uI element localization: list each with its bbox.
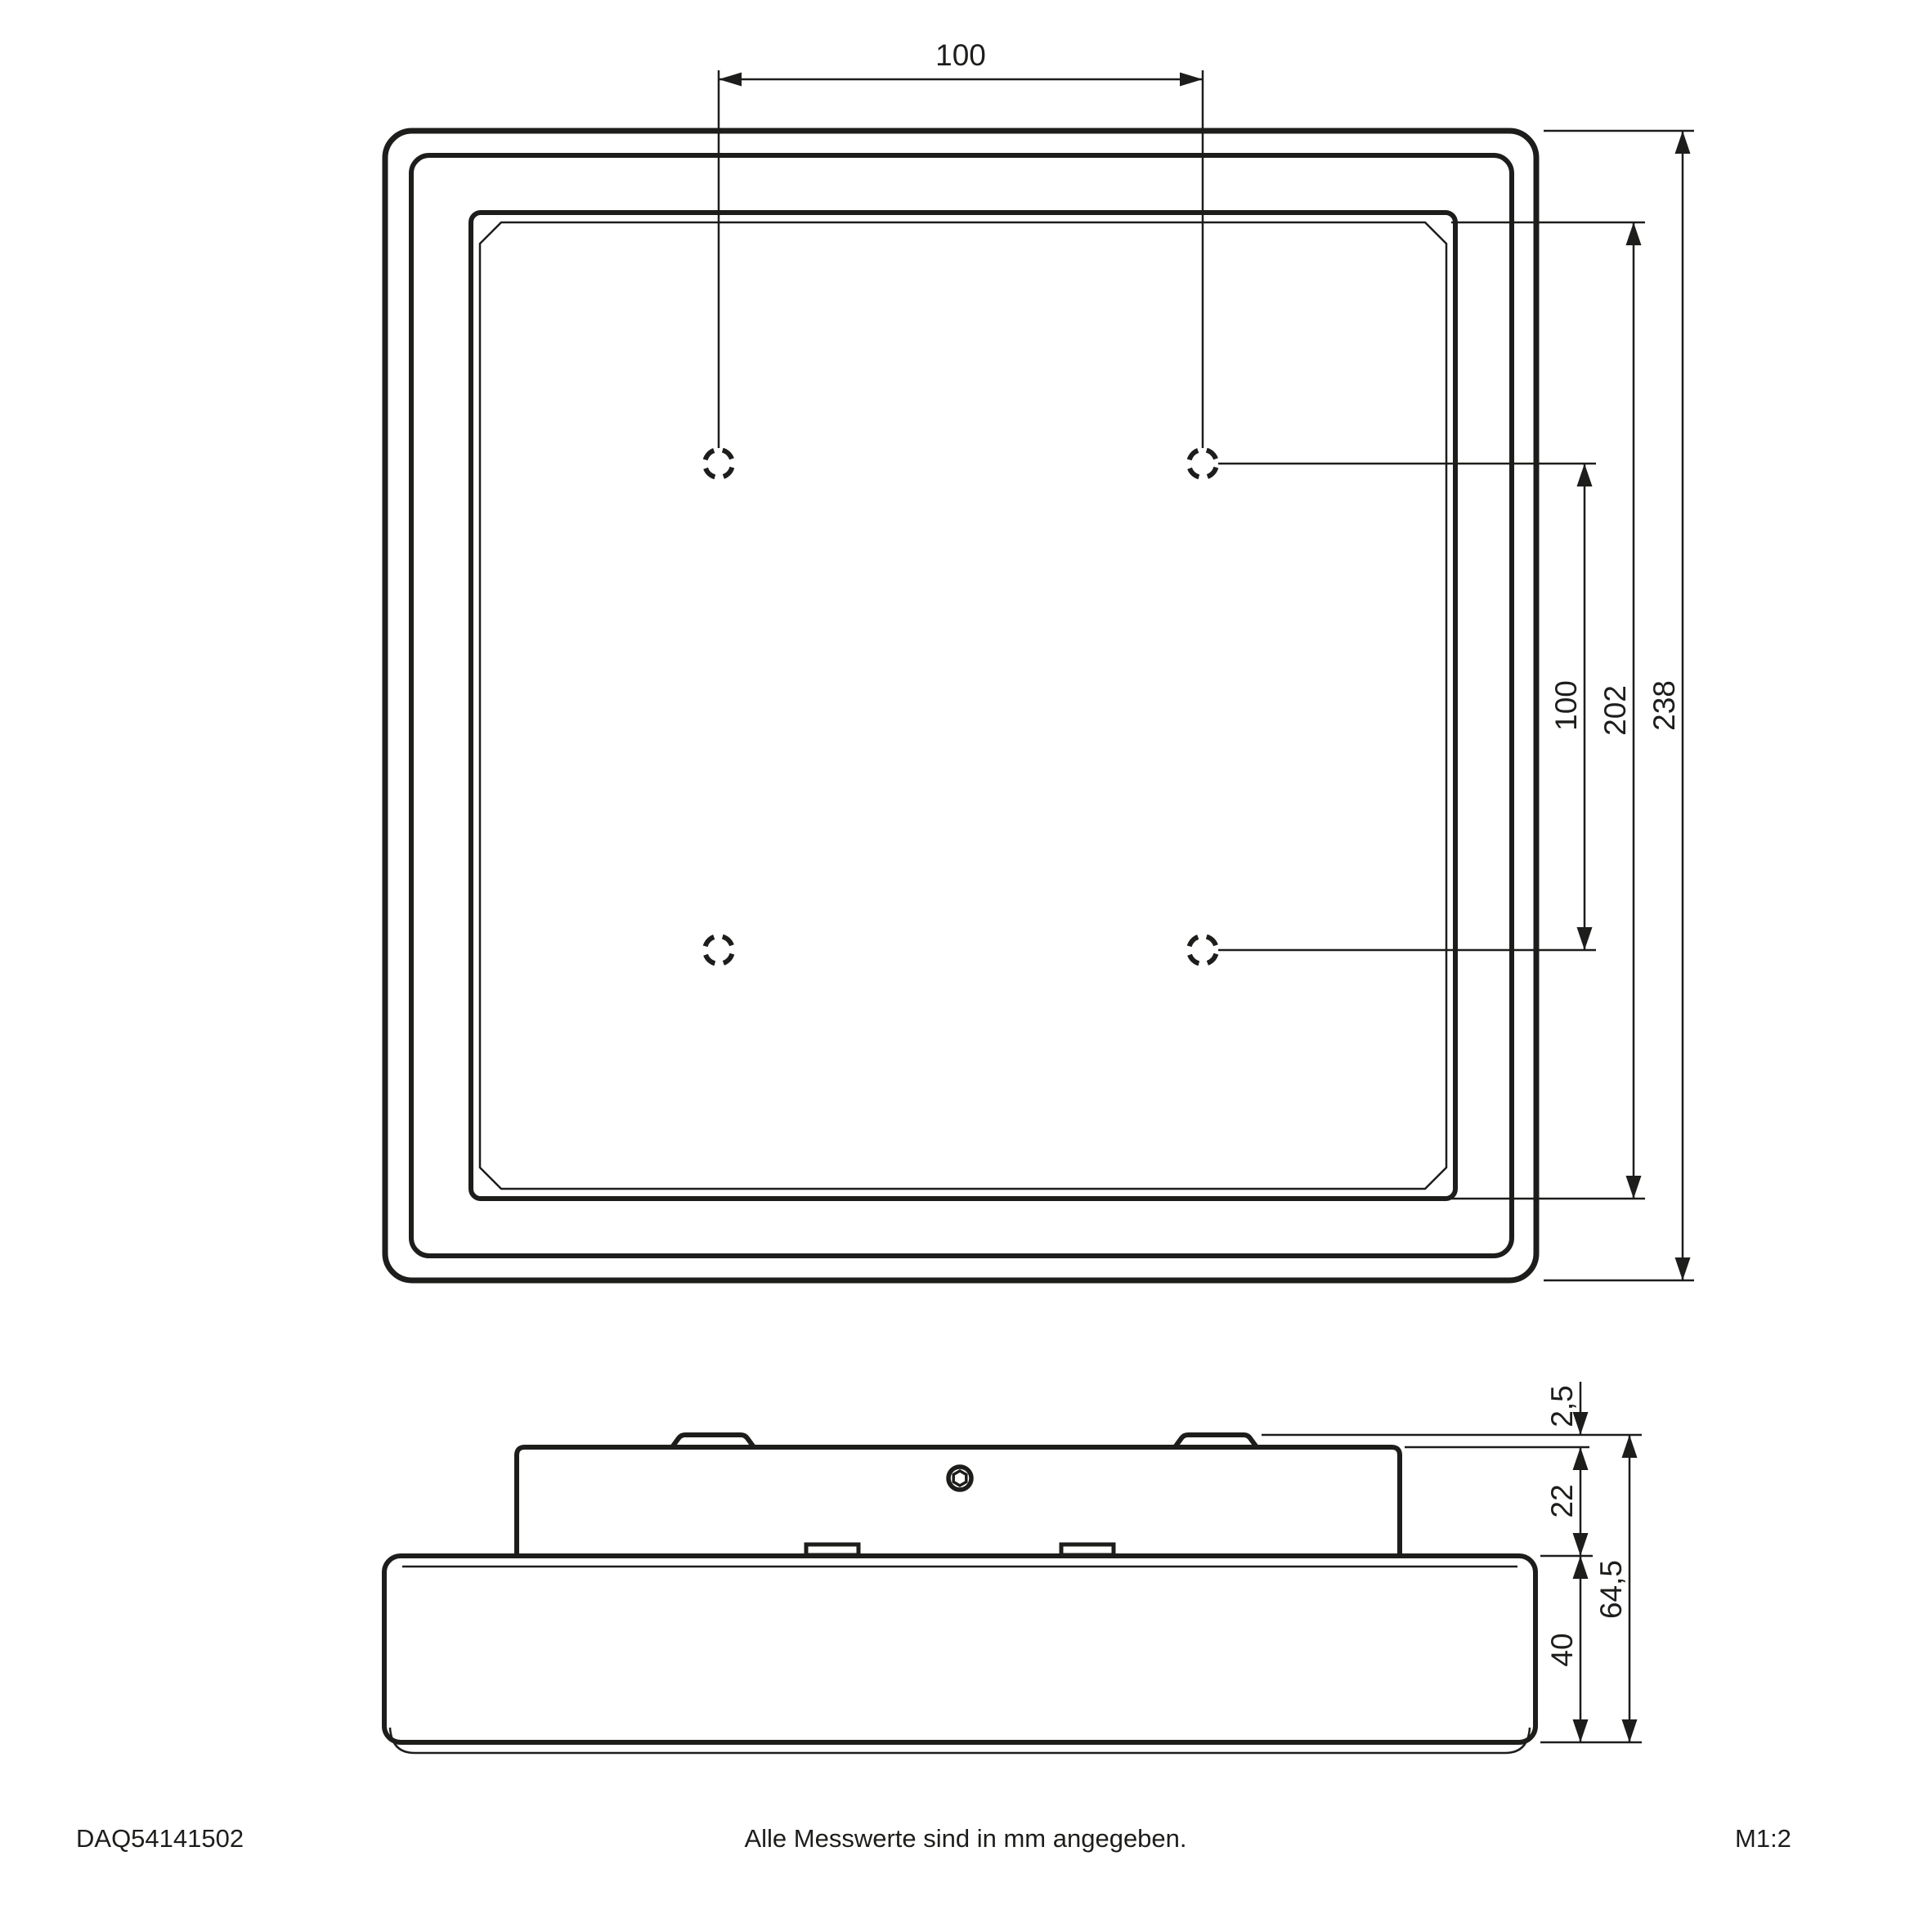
outer-frame-outline: [385, 131, 1536, 1280]
arrowhead-up-icon: [1626, 222, 1642, 245]
dim-label-housing-height: 22: [1545, 1484, 1579, 1517]
side-view: 2,5 22 40 64,5: [384, 1382, 1642, 1753]
arrowhead-down-icon: [1626, 1176, 1642, 1199]
mounting-hole-bottom-left: [705, 936, 733, 964]
arrowhead-down-icon: [1675, 1257, 1691, 1280]
mounting-hole-bottom-right: [1189, 936, 1217, 964]
arrowhead-up-icon: [1573, 1447, 1589, 1470]
dimension-drawing-canvas: 100 100 202 238: [0, 0, 1932, 1932]
dim-label-outer-frame: 238: [1647, 680, 1681, 731]
mounting-hole-top-right: [1189, 450, 1217, 477]
driver-housing-outline: [517, 1447, 1400, 1556]
scale-label: M1:2: [1735, 1824, 1791, 1853]
dim-label-inner-panel: 202: [1598, 685, 1632, 736]
dimension-clip-protrusion: 2,5: [1262, 1382, 1642, 1447]
document-number: DAQ54141502: [76, 1824, 244, 1853]
dim-label-clip-protrusion: 2,5: [1545, 1385, 1579, 1427]
dimension-hole-spacing-horizontal: 100: [719, 38, 1203, 448]
footer: DAQ54141502 Alle Messwerte sind in mm an…: [76, 1824, 1791, 1853]
diffuser-outline: [384, 1556, 1535, 1742]
light-panel-outline: [471, 213, 1455, 1199]
screw-hex-socket-icon: [953, 1471, 966, 1486]
arrowhead-down-icon: [1573, 1533, 1589, 1556]
light-panel-bevel-line: [480, 222, 1446, 1189]
dim-label-diffuser-height: 40: [1545, 1633, 1579, 1666]
dim-label-hole-spacing-h: 100: [935, 38, 986, 72]
arrowhead-up-icon: [1573, 1556, 1589, 1579]
dim-label-hole-spacing-v: 100: [1549, 680, 1583, 731]
screw-head: [948, 1467, 971, 1490]
mounting-hole-top-left: [705, 450, 733, 477]
top-view: 100 100 202 238: [385, 38, 1694, 1280]
arrowhead-up-icon: [1622, 1435, 1638, 1458]
arrowhead-up-icon: [1577, 464, 1593, 486]
units-note: Alle Messwerte sind in mm angegeben.: [744, 1824, 1186, 1853]
arrowhead-left-icon: [719, 73, 742, 87]
arrowhead-up-icon: [1675, 131, 1691, 154]
technical-drawing-page: 100 100 202 238: [0, 0, 1932, 1932]
dimension-inner-panel: 202: [1451, 222, 1645, 1199]
arrowhead-down-icon: [1622, 1719, 1638, 1742]
dimension-total-height: 64,5: [1594, 1435, 1638, 1742]
arrowhead-down-icon: [1573, 1719, 1589, 1742]
arrowhead-down-icon: [1577, 927, 1593, 950]
dimension-hole-spacing-vertical: 100: [1218, 464, 1596, 950]
frame-inner-edge: [411, 155, 1512, 1256]
dim-label-total-height: 64,5: [1594, 1560, 1628, 1619]
arrowhead-right-icon: [1180, 73, 1203, 87]
dimension-housing-height: 22: [1545, 1447, 1589, 1556]
